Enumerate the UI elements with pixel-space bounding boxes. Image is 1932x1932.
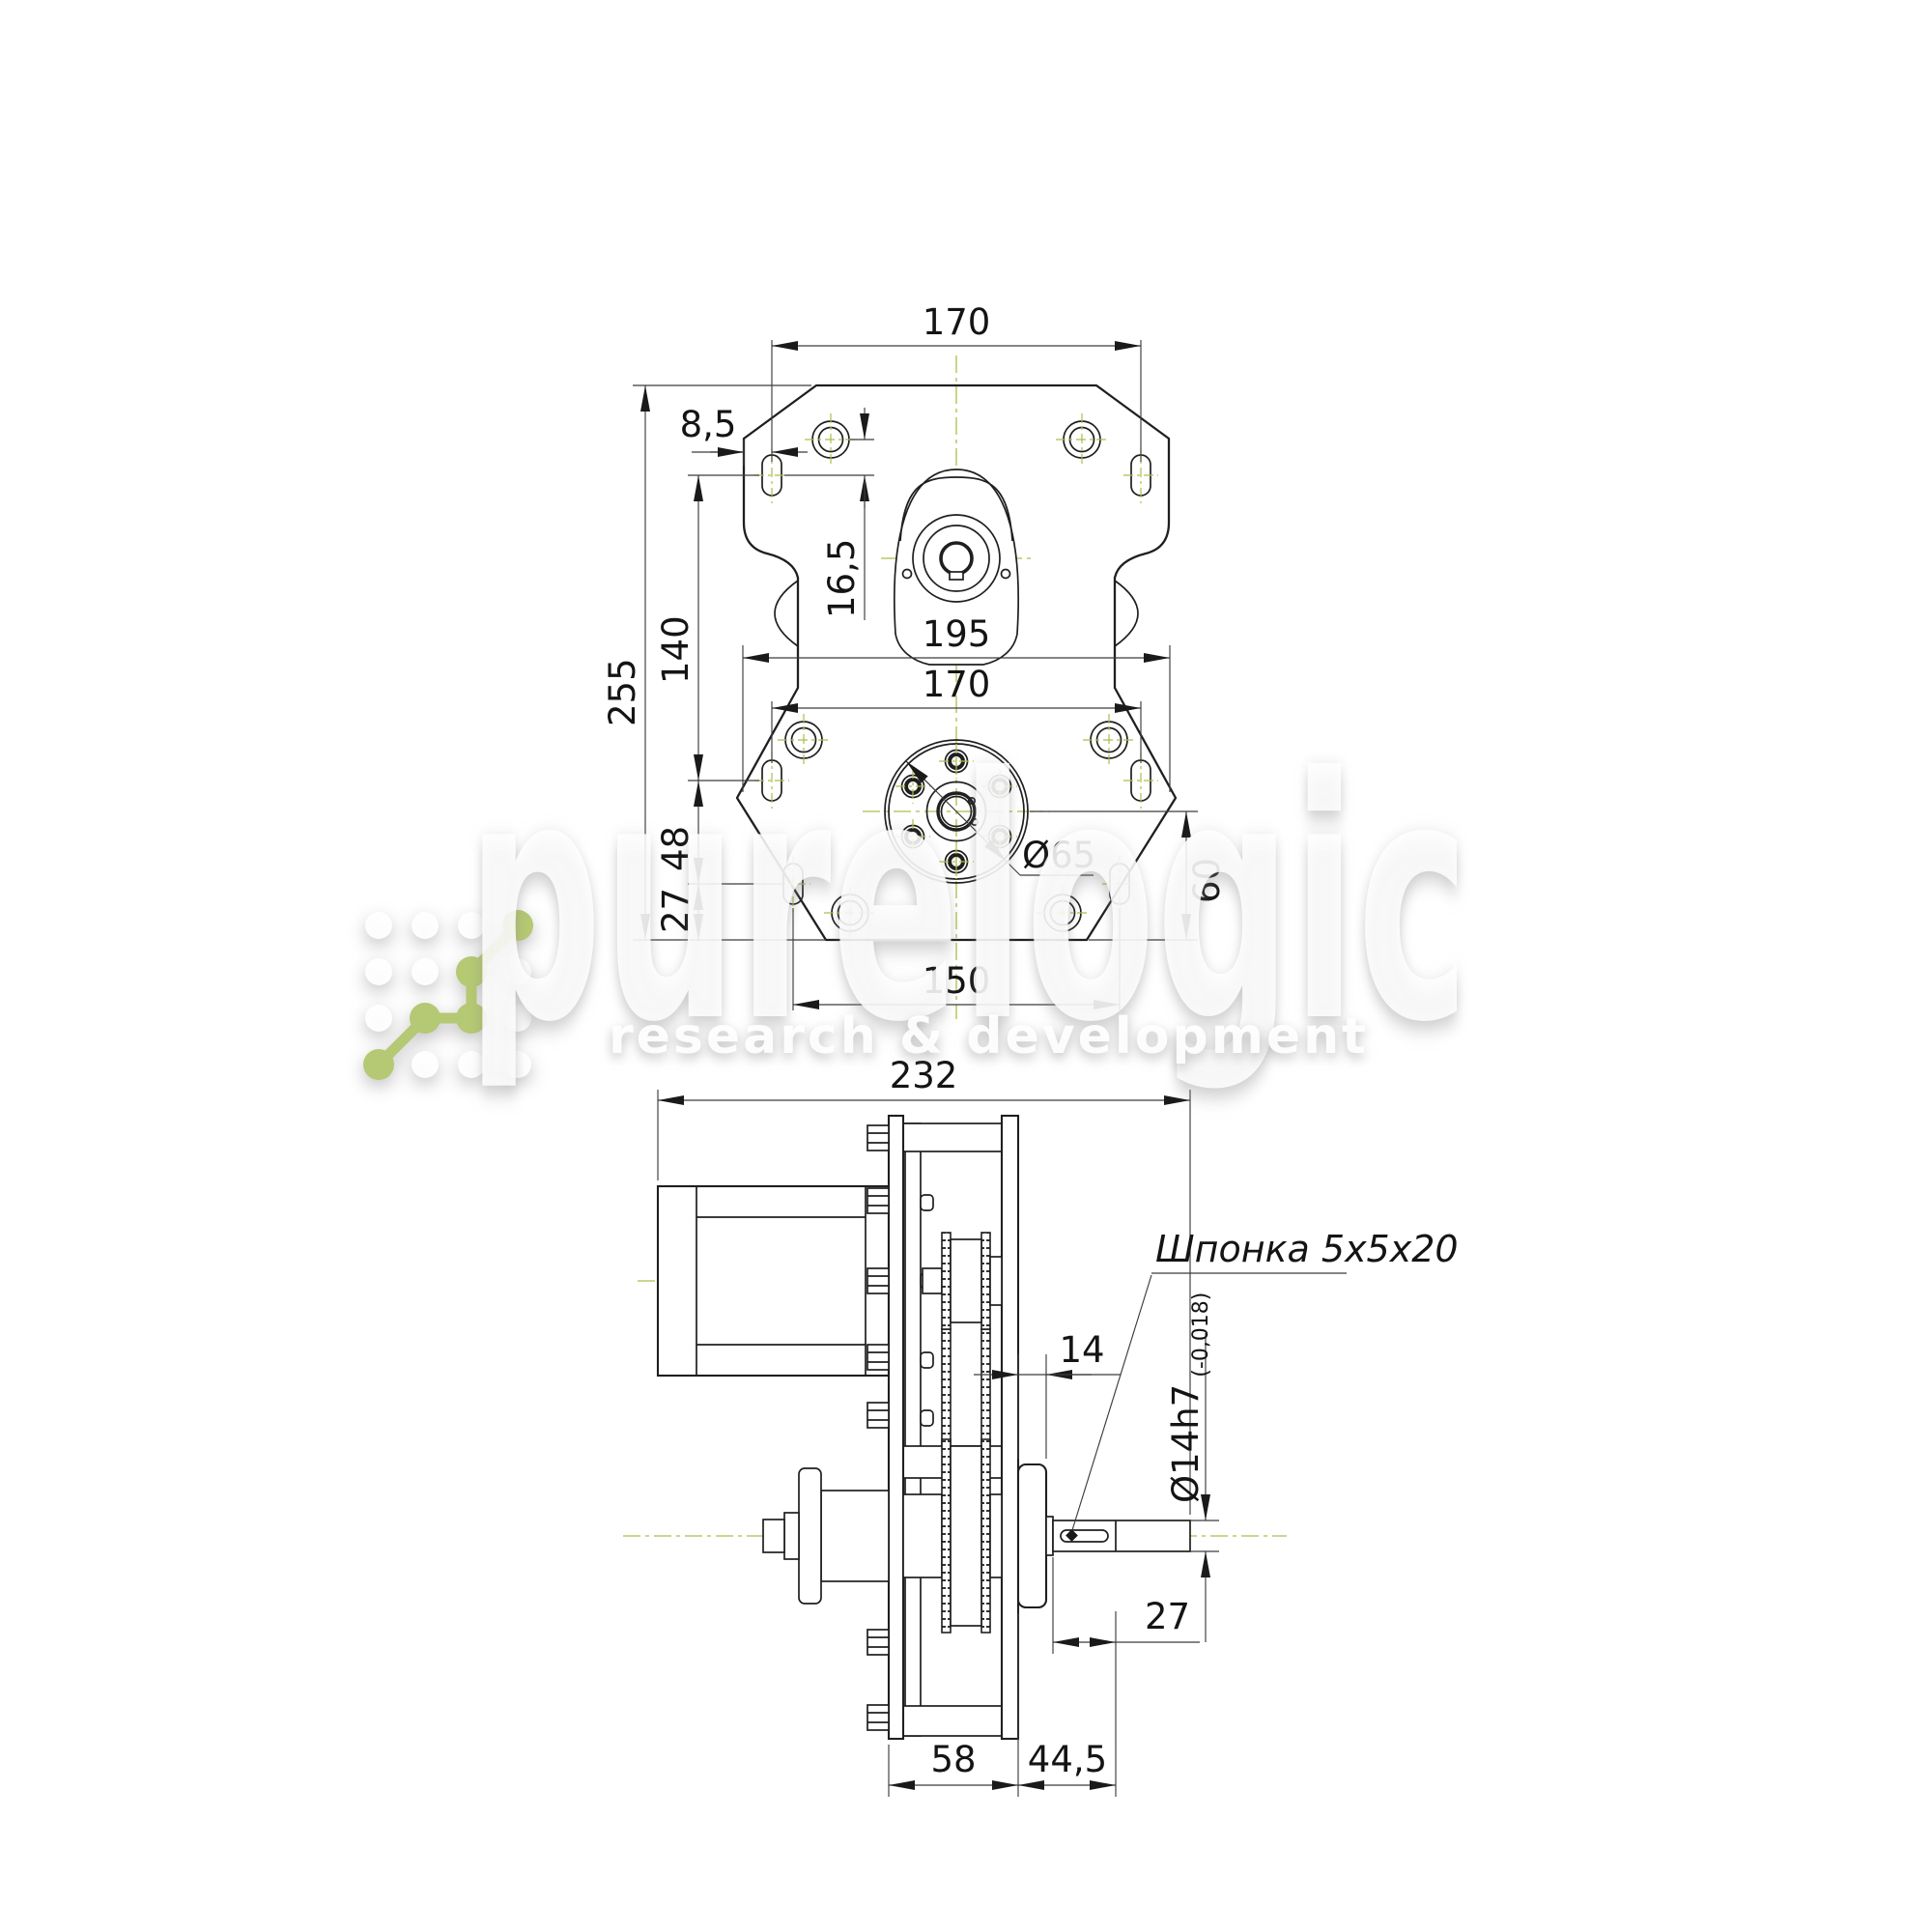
side-view: 232 14 Шпонка 5x5x20 Ø14h7 (-0,018): [623, 1055, 1459, 1797]
hex-bolt: [867, 1125, 889, 1151]
bolt-tip: [921, 1410, 933, 1426]
bolt-tip: [921, 1195, 933, 1210]
hex-bolt: [867, 1403, 889, 1428]
technical-drawing-page: 170 8,5 16,5 140 255: [0, 0, 1932, 1932]
stepper-motor: [658, 1186, 889, 1376]
dim-hole-to-slot: 16,5: [821, 539, 863, 618]
dim-key-length: 27: [1145, 1596, 1190, 1637]
dim-flange-thickness: 14: [1059, 1329, 1104, 1371]
keyway-notch: [950, 572, 963, 580]
watermark-tagline: research & development: [609, 1008, 1369, 1065]
output-shaft-rear: [763, 1468, 889, 1604]
dim-shaft-out: 44,5: [1028, 1739, 1107, 1780]
hex-bolt: [867, 1630, 889, 1655]
spacer-plate: [905, 1123, 921, 1736]
dim-edge-offset: 8,5: [680, 404, 737, 445]
key-note: Шпонка 5x5x20: [1155, 1228, 1459, 1270]
mount-hole: [805, 413, 857, 466]
waist-scallop-right: [1115, 581, 1138, 646]
hex-bolt: [867, 1268, 889, 1293]
waist-scallop-left: [775, 581, 798, 646]
motor-pulley: [923, 1233, 1002, 1329]
belt-strand: [942, 1329, 951, 1446]
top-bar: [903, 1123, 1002, 1151]
dim-width-max: 195: [923, 613, 991, 655]
hex-bolt: [867, 1705, 889, 1730]
dim-slot-span: 140: [655, 615, 696, 684]
bottom-bar: [903, 1706, 1002, 1736]
belt-strand: [981, 1329, 990, 1446]
mount-hole: [1056, 413, 1108, 466]
bolt-tip: [921, 1352, 933, 1368]
hex-bolt: [867, 1188, 889, 1213]
watermark: purelogic research & development: [363, 708, 1469, 1096]
shaft-flange-disc: [1018, 1464, 1046, 1607]
plate-front: [889, 1116, 903, 1739]
side-view-dimensions: 232 14 Шпонка 5x5x20 Ø14h7 (-0,018): [658, 1055, 1459, 1797]
dim-width-lower: 170: [923, 664, 991, 705]
drawing-canvas: 170 8,5 16,5 140 255: [0, 0, 1932, 1932]
hex-bolt: [867, 1345, 889, 1370]
dim-width-top: 170: [923, 301, 991, 343]
dim-shaft-dia: Ø14h7 (-0,018): [1165, 1293, 1213, 1503]
dim-body-width: 58: [930, 1739, 976, 1780]
plate-rear: [1002, 1116, 1018, 1739]
